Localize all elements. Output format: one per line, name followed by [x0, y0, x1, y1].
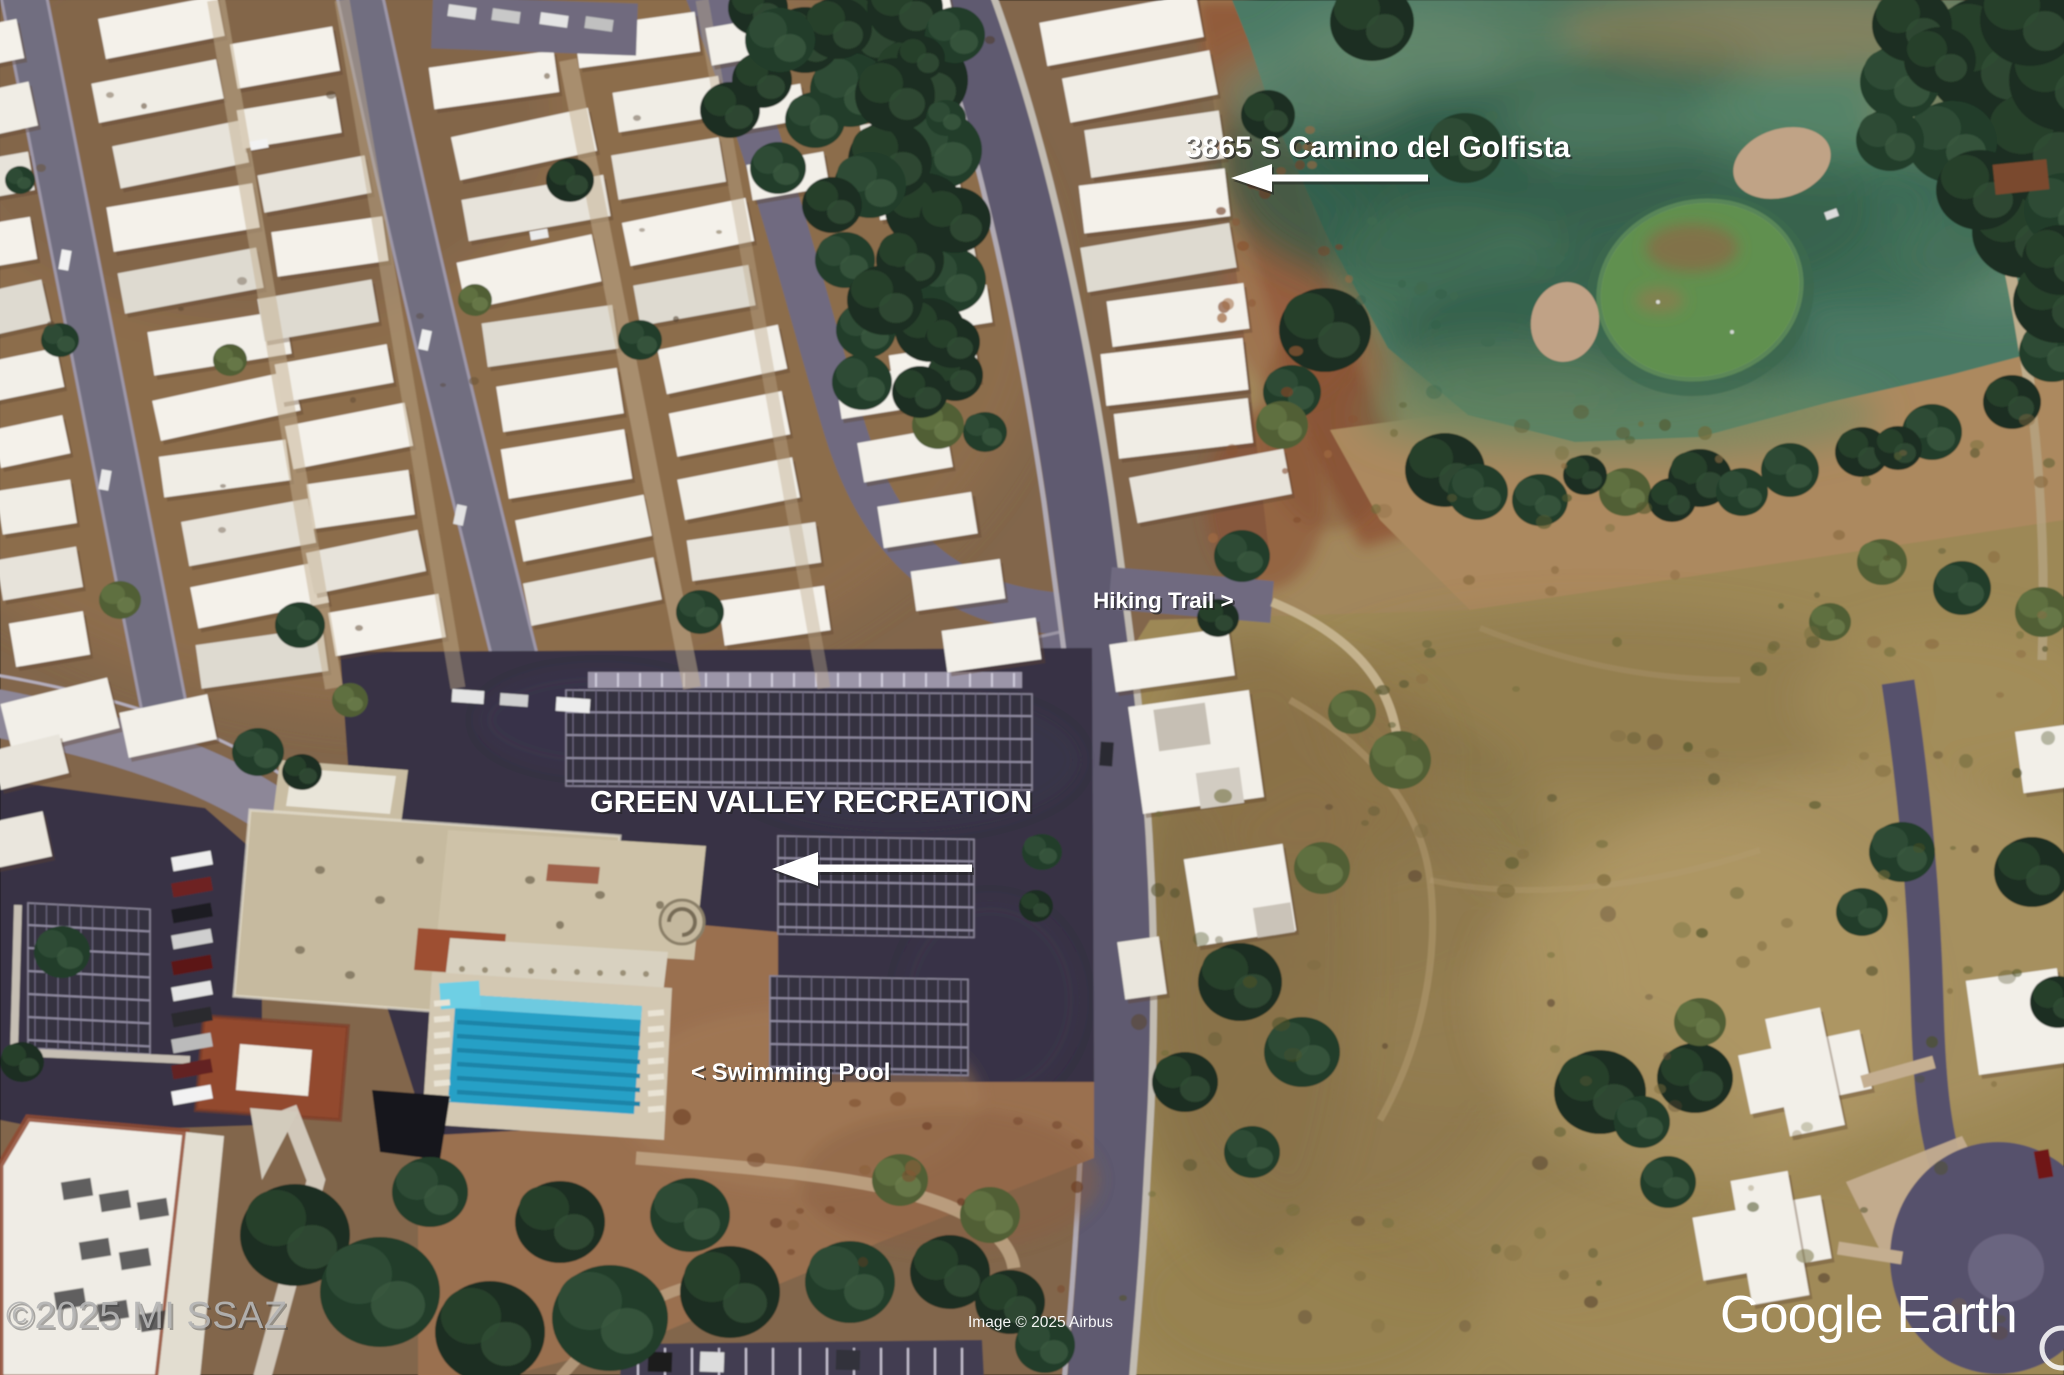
- svg-text:Hiking Trail >: Hiking Trail >: [1093, 588, 1234, 613]
- svg-text:Image © 2025 Airbus: Image © 2025 Airbus: [968, 1314, 1113, 1331]
- svg-text:©2025 MI SSAZ: ©2025 MI SSAZ: [6, 1295, 288, 1337]
- svg-text:Google Earth: Google Earth: [1720, 1286, 2017, 1344]
- svg-text:< Swimming Pool: < Swimming Pool: [691, 1059, 890, 1086]
- svg-text:3865 S Camino del Golfista: 3865 S Camino del Golfista: [1185, 131, 1570, 164]
- svg-text:GREEN VALLEY RECREATION: GREEN VALLEY RECREATION: [590, 785, 1032, 819]
